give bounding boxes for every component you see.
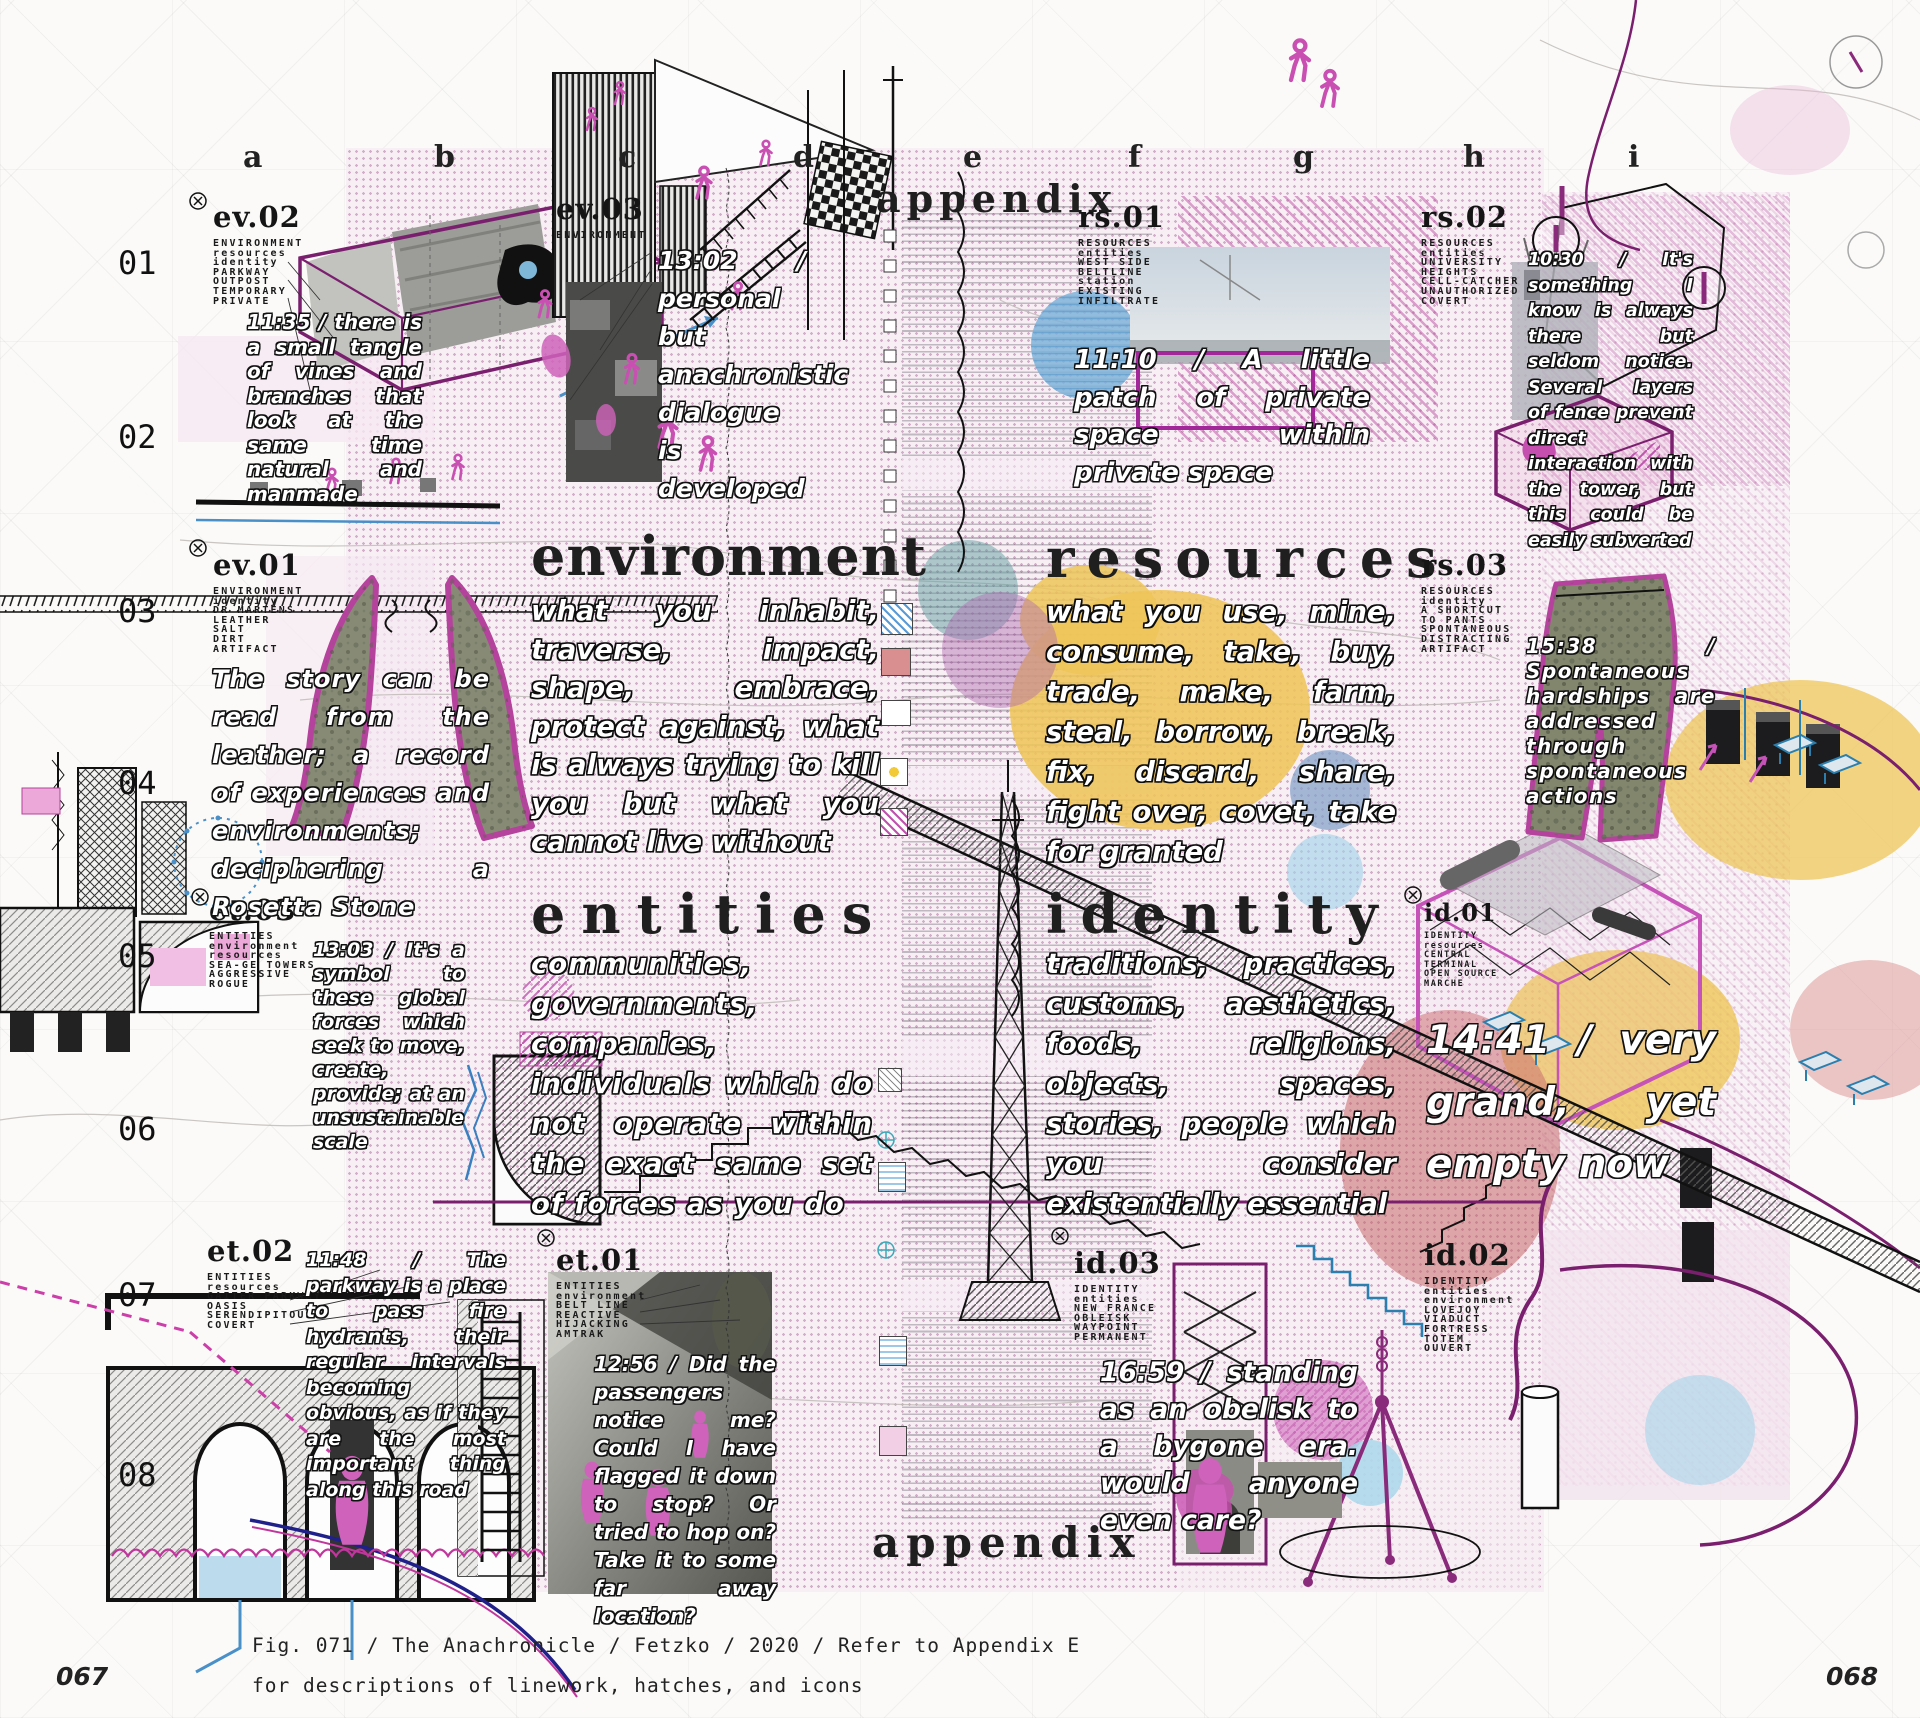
- legend-swatch-red: [881, 648, 911, 676]
- legend-swatch-white: [881, 700, 911, 726]
- column-letter-f: f: [1128, 140, 1141, 175]
- column-letter-c: c: [618, 140, 636, 175]
- callout-id01: id.01 IDENTITY resources CENTRAL TERMINA…: [1424, 898, 1498, 990]
- page-number-left: 067: [56, 1662, 108, 1691]
- row-number-02: 02: [118, 418, 157, 456]
- callout-rs03-code: rs.03: [1421, 548, 1511, 582]
- callout-rs03: rs.03 RESOURCES identity A SHORTCUT TO P…: [1421, 548, 1511, 654]
- figure-caption: Fig. 071 / The Anachronicle / Fetzko / 2…: [252, 1626, 1080, 1706]
- section-title-identity: identity: [1046, 882, 1392, 946]
- page-number-right: 068: [1826, 1662, 1878, 1691]
- note-ev03: 13:02 / personal but anachronistic dialo…: [658, 242, 806, 508]
- callout-rs02: rs.02 RESOURCES entities UNIVERSITY HEIG…: [1421, 200, 1520, 306]
- section-title-entities: entities: [531, 882, 888, 946]
- note-ev02: 11:35 / there is a small tangle of vines…: [247, 310, 422, 506]
- callout-ev02-tags: ENVIRONMENT resources identity PARKWAY O…: [213, 239, 303, 306]
- figure-caption-line1: Fig. 071 / The Anachronicle / Fetzko / 2…: [252, 1626, 1080, 1666]
- note-rs01: 11:10 / A little patch of private space …: [1074, 342, 1370, 492]
- note-rs02: 10:30 / It's something I know is always …: [1528, 248, 1693, 554]
- legend-swatch-crosshatch: [878, 1068, 902, 1092]
- callout-id01-code: id.01: [1424, 898, 1498, 927]
- legend-swatch-bluelines-2: [879, 1336, 907, 1366]
- column-letter-d: d: [793, 140, 814, 175]
- row-number-03: 03: [118, 592, 157, 630]
- callout-rs01-code: rs.01: [1078, 200, 1165, 234]
- legend-swatch-yellow-dot: [880, 758, 908, 786]
- callout-id03-tags: IDENTITY entities NEW FRANCE OBLEISK WAY…: [1074, 1285, 1161, 1343]
- callout-et01: et.01 ENTITIES environment BELT LINE REA…: [556, 1243, 646, 1340]
- legend-swatch-magenta-hatch: [880, 808, 908, 836]
- section-body-resources: what you use, mine, consume, take, buy, …: [1046, 592, 1396, 872]
- note-et03: 13:03 / It's a symbol to these global fo…: [313, 938, 465, 1154]
- section-title-environment: environment: [531, 524, 927, 588]
- callout-et02-code: et.02: [207, 1234, 322, 1268]
- callout-id02-tags: IDENTITY entities environment LOVEJOY VI…: [1424, 1277, 1514, 1354]
- callout-et01-tags: ENTITIES environment BELT LINE REACTIVE …: [556, 1282, 646, 1340]
- legend-swatch-pink: [879, 1426, 907, 1456]
- callout-id03: id.03 IDENTITY entities NEW FRANCE OBLEI…: [1074, 1246, 1161, 1343]
- callout-rs02-code: rs.02: [1421, 200, 1520, 234]
- note-et01: 12:56 / Did the passengers notice me? Co…: [594, 1350, 776, 1630]
- callout-et02: et.02 ENTITIES resources GAITER PARKWAY …: [207, 1234, 322, 1331]
- callout-ev01-code: ev.01: [213, 548, 303, 582]
- row-number-06: 06: [118, 1110, 157, 1148]
- column-letter-b: b: [434, 140, 455, 175]
- section-body-identity: traditions, practices, customs, aestheti…: [1046, 944, 1396, 1224]
- row-number-07: 07: [118, 1276, 157, 1314]
- section-title-resources: resources: [1046, 526, 1449, 590]
- note-ev01: The story can be read from the leather; …: [212, 660, 490, 926]
- column-letter-a: a: [243, 140, 262, 175]
- row-number-05: 05: [118, 937, 157, 975]
- callout-rs03-tags: RESOURCES identity A SHORTCUT TO PANTS S…: [1421, 587, 1511, 654]
- callout-ev03-tags: ENVIRONMENT: [556, 231, 646, 241]
- figure-caption-line2: for descriptions of linework, hatches, a…: [252, 1666, 1080, 1706]
- callout-ev02: ev.02 ENVIRONMENT resources identity PAR…: [213, 200, 303, 306]
- callout-id02-code: id.02: [1424, 1238, 1514, 1272]
- callout-id02: id.02 IDENTITY entities environment LOVE…: [1424, 1238, 1514, 1354]
- callout-et02-tags: ENTITIES resources GAITER PARKWAY OASIS …: [207, 1273, 322, 1331]
- note-id03: 16:59 / standing as an obelisk to a bygo…: [1100, 1354, 1358, 1539]
- callout-ev03: ev.03 ENVIRONMENT: [556, 192, 646, 241]
- column-letter-h: h: [1463, 140, 1485, 175]
- legend-swatch-bluelines: [878, 1162, 906, 1192]
- row-number-04: 04: [118, 764, 157, 802]
- note-rs03: 15:38 / Spontaneous hardships are addres…: [1526, 634, 1716, 809]
- callout-rs02-tags: RESOURCES entities UNIVERSITY HEIGHTS CE…: [1421, 239, 1520, 306]
- callout-rs01: rs.01 RESOURCES entities WEST SIDE BELTL…: [1078, 200, 1165, 306]
- row-number-08: 08: [118, 1456, 157, 1494]
- note-id01: 14:41 / very grand, yet empty now: [1426, 1010, 1716, 1196]
- callout-et01-code: et.01: [556, 1243, 646, 1277]
- callout-ev01-tags: ENVIRONMENT identity DR MARTENS LEATHER …: [213, 587, 303, 654]
- note-et02: 11:48 / The parkway is a place to pass f…: [306, 1248, 506, 1503]
- callout-et03-tags: ENTITIES environment resources SEA-GE TO…: [209, 932, 316, 990]
- callout-id03-code: id.03: [1074, 1246, 1161, 1280]
- callout-ev01: ev.01 ENVIRONMENT identity DR MARTENS LE…: [213, 548, 303, 654]
- column-letter-g: g: [1293, 140, 1314, 175]
- callout-id01-tags: IDENTITY resources CENTRAL TERMINAL OPEN…: [1424, 932, 1498, 990]
- callout-ev02-code: ev.02: [213, 200, 303, 234]
- section-body-environment: what you inhabit, traverse, impact, shap…: [531, 592, 879, 862]
- callout-rs01-tags: RESOURCES entities WEST SIDE BELTLINE st…: [1078, 239, 1165, 306]
- legend-swatch-blue-hatch: [881, 603, 913, 635]
- section-body-entities: communities, governments, companies, ind…: [531, 944, 873, 1224]
- callout-ev03-code: ev.03: [556, 192, 646, 226]
- anachronicle-map-page: { "page": { "caption_line1": "Fig. 071 /…: [0, 0, 1920, 1718]
- row-number-01: 01: [118, 244, 157, 282]
- column-letter-i: i: [1628, 140, 1639, 175]
- column-letter-e: e: [963, 140, 982, 175]
